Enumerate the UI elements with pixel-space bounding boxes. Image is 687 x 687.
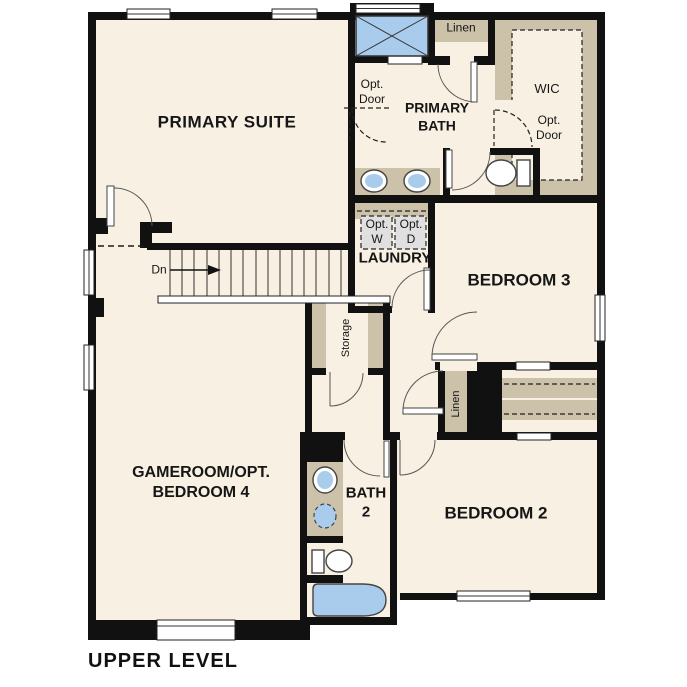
sink [313, 467, 337, 493]
room-label-primary-bath: PRIMARY BATH [391, 100, 483, 135]
closet-rod-bedroom3 [502, 378, 597, 398]
room-label-linen-middle: Linen [450, 391, 464, 418]
opt-door-label: Opt. Door [526, 113, 572, 143]
window [595, 295, 605, 341]
wic-entry-opening [495, 100, 513, 148]
room-label-bedroom-3: BEDROOM 3 [468, 269, 571, 290]
stair-railing [158, 296, 390, 303]
room-label-laundry: LAUNDRY [359, 250, 432, 269]
window [272, 9, 317, 19]
optional-sink [314, 504, 336, 528]
room-label-primary-suite: PRIMARY SUITE [157, 111, 297, 132]
bathtub [313, 584, 386, 616]
room-label-gameroom: GAMEROOM/OPT. BEDROOM 4 [107, 463, 295, 503]
toilet [312, 550, 352, 573]
wic-optional-layout [512, 30, 582, 180]
closet-slider [517, 433, 551, 440]
window [127, 9, 170, 19]
toilet [486, 160, 530, 186]
closet-rod-bedroom2 [502, 400, 597, 420]
opt-washer-label: Opt. W [360, 217, 394, 247]
shower [356, 16, 428, 56]
opt-door-label: Opt. Door [349, 77, 395, 107]
window [356, 4, 420, 13]
room-label-storage: Storage [340, 319, 354, 358]
sink [361, 170, 387, 192]
opt-dryer-label: Opt. D [394, 217, 428, 247]
closet-slider [516, 362, 550, 370]
room-label-wic: WIC [534, 81, 559, 97]
window [457, 591, 530, 601]
storage-shelf-left [312, 303, 326, 368]
room-label-bedroom-2: BEDROOM 2 [445, 502, 548, 523]
stairs-down-label: Dn [151, 263, 166, 278]
window [84, 345, 94, 390]
floor-plan: PRIMARY SUITE PRIMARY BATH WIC Linen LAU… [0, 0, 687, 687]
sink [404, 170, 430, 192]
room-label-bath-2: BATH 2 [342, 484, 390, 522]
window [84, 250, 94, 295]
bay-window [157, 620, 235, 640]
room-label-linen-top: Linen [446, 21, 475, 36]
page-title: UPPER LEVEL [88, 649, 238, 674]
